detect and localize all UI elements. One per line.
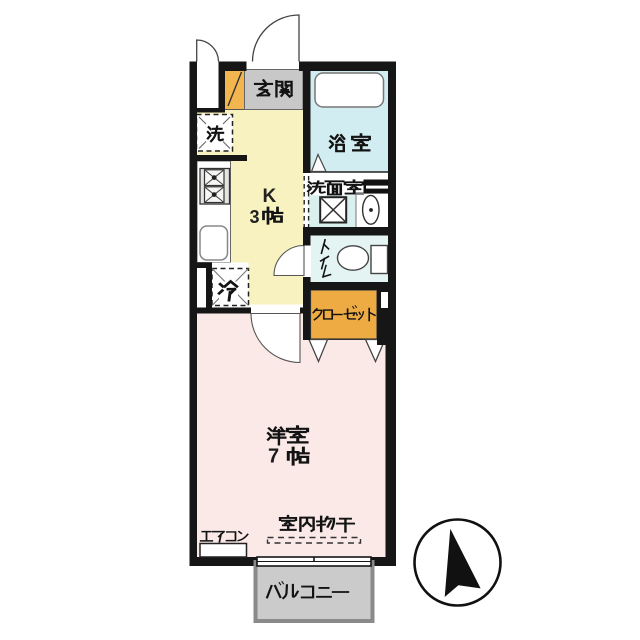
svg-text:K: K — [263, 186, 277, 207]
svg-text:3: 3 — [250, 207, 260, 227]
svg-text:7: 7 — [268, 446, 279, 468]
